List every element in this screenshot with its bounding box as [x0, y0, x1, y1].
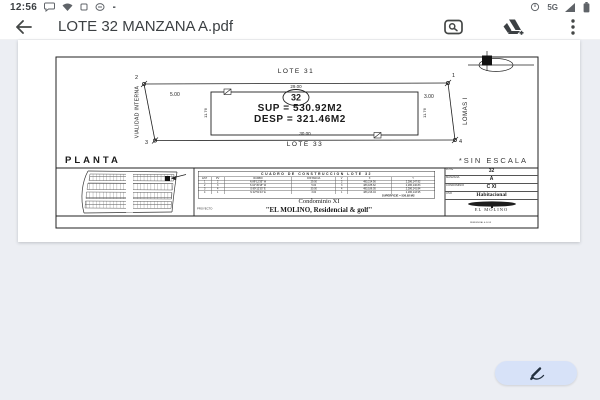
lot-number: 32: [291, 93, 301, 102]
battery-icon: [583, 2, 590, 13]
title-block: LOTE 32 MANZANA A CONDOMINIO C XI USO Ha…: [445, 168, 538, 216]
signal-strength-icon: [565, 3, 576, 12]
table-row: 1 2 N 89°12'35" W 29.00 2 483,214.56 2,2…: [199, 180, 435, 184]
table-row: 4 1 N 02°51'44" E 3.00 1 483,216.04 2,28…: [199, 191, 435, 195]
title-block-row-condominio: CONDOMINIO C XI: [445, 184, 538, 192]
setback-left-dimension: 5.00: [170, 93, 180, 98]
back-button[interactable]: [10, 15, 36, 39]
dimension-bottom: 30.00: [299, 132, 310, 137]
status-bar: 12:56 5G: [0, 0, 600, 14]
pen-icon: [528, 365, 545, 381]
neighbor-lot-top-label: LOTE 31: [278, 69, 315, 76]
dot-indicator-icon: [112, 5, 116, 9]
table-header-row: EST PV RUMBO DISTANCIA V X Y: [199, 177, 435, 181]
planta-label: PLANTA: [65, 156, 121, 166]
kebab-menu-icon: [571, 19, 575, 35]
desplante-area-text: DESP = 321.46M2: [254, 115, 346, 125]
data-saver-icon: [530, 2, 540, 12]
street-right-label: LOMAS I: [463, 97, 469, 125]
no-scale-note: *SIN ESCALA: [459, 157, 528, 165]
wifi-icon: [62, 3, 73, 12]
find-in-page-button[interactable]: [440, 15, 466, 39]
neighbor-lot-bottom-label: LOTE 33: [287, 142, 324, 149]
network-type-label: 5G: [547, 3, 558, 12]
logo-name: EL MOLINO: [445, 208, 538, 213]
project-side-label: PROYECTO: [197, 208, 212, 211]
phone-screen: 12:56 5G: [0, 0, 600, 400]
logo-subtitle: RESIDENCIAL & GOLF: [470, 221, 491, 224]
chat-icon: [44, 2, 55, 12]
mute-icon: [95, 3, 105, 11]
pdf-viewer-toolbar: LOTE 32 MANZANA A.pdf: [0, 14, 600, 40]
back-arrow-icon: [15, 20, 32, 34]
corner-label-4: 4: [459, 140, 462, 146]
dimension-top: 29.00: [290, 85, 301, 90]
construction-table: CUADRO DE CONSTRUCCION LOTE 32 EST PV RU…: [198, 171, 435, 197]
clock-time: 12:56: [10, 2, 37, 13]
developer-logo: EL MOLINO RESIDENCIAL & GOLF: [445, 201, 538, 217]
add-to-drive-icon: [502, 18, 525, 35]
street-left-label: VIALIDAD INTERNA: [136, 86, 141, 139]
pdf-page[interactable]: LOTE 31 29.00 30.00 LOTE 33 2 1 3 4 5.00…: [18, 40, 580, 242]
table-row: 3 4 S 89°12'35" E 30.00 4 483,186.05 2,2…: [199, 187, 435, 191]
development-name: "EL MOLINO, Residencial & golf": [266, 207, 373, 214]
document-title: LOTE 32 MANZANA A.pdf: [58, 18, 430, 35]
title-block-row-manzana: MANZANA A: [445, 176, 538, 184]
highlighted-lot-marker: [165, 176, 170, 181]
corner-label-1: 1: [452, 74, 455, 80]
annotate-fab-button[interactable]: [495, 361, 577, 385]
side-left-dimension: 11.76: [204, 108, 208, 118]
location-mini-map: [82, 171, 186, 213]
overflow-menu-button[interactable]: [560, 15, 586, 39]
corner-label-2: 2: [135, 76, 138, 82]
title-block-row-uso: USO Habitacional: [445, 192, 538, 200]
north-arrow-icon: [468, 51, 534, 72]
screenshot-icon: [80, 3, 88, 11]
add-to-drive-button[interactable]: [500, 15, 526, 39]
title-block-row-lote: LOTE 32: [445, 168, 538, 176]
side-right-dimension: 11.76: [423, 108, 427, 118]
table-row: 2 3 S 04°45'18" W 5.00 3 483,185.62 2,28…: [199, 184, 435, 188]
surface-area-text: SUP = 530.92M2: [258, 104, 343, 114]
corner-label-3: 3: [145, 141, 148, 147]
find-in-page-icon: [444, 19, 463, 35]
setback-right-dimension: 3.00: [424, 95, 434, 100]
